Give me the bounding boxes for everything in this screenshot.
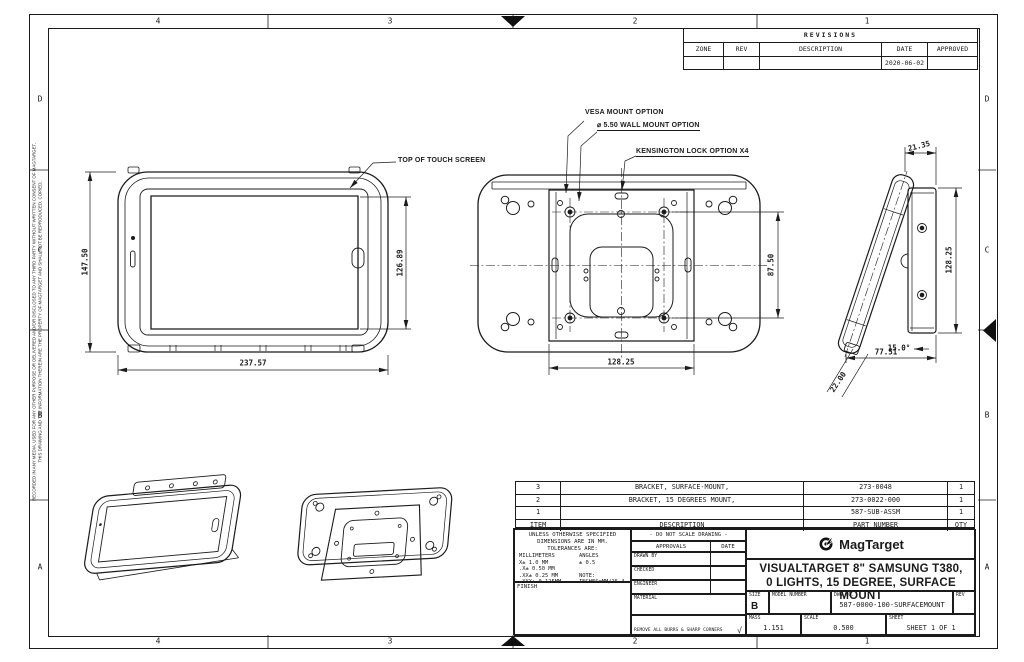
tol-angles: ANGLES [579, 553, 598, 560]
back-view [470, 168, 768, 358]
approvals-header-box: APPROVALS DATE [631, 541, 746, 552]
scale-value: 0.500 [802, 624, 885, 632]
title-block: UNLESS OTHERWISE SPECIFIED DIMENSIONS AR… [513, 528, 975, 635]
material-box: MATERIAL [631, 594, 746, 615]
iso-view-front [82, 472, 253, 581]
dim-screen-height: 126.89 [396, 249, 405, 276]
drawn-by-label: DRAWN BY [634, 554, 657, 559]
rev-entry-date: 2020-06-02 [882, 57, 928, 70]
drawing-title-box: VISUALTARGET 8" SAMSUNG T380, 0 LIGHTS, … [746, 559, 976, 591]
revisions-table: REVISIONS ZONE REV DESCRIPTION DATE APPR… [683, 28, 978, 70]
tol-angle-val: ± 0.5 [579, 560, 595, 567]
copyright-line-1: THIS DRAWING AND THE INFORMATION THEREIN… [37, 143, 43, 501]
brand-name: MagTarget [839, 537, 904, 552]
zone-row-d-right: D [985, 95, 990, 104]
zone-col-1: 1 [865, 17, 870, 26]
revisions-title: REVISIONS [684, 29, 977, 43]
front-view-dimensions [85, 162, 411, 375]
part-qty: 1 [948, 495, 974, 507]
part-number: 587-SUB-ASSM [804, 507, 948, 519]
zone-col-3: 3 [388, 17, 393, 26]
zone-col-3b: 3 [388, 637, 393, 646]
do-not-scale-label: - DO NOT SCALE DRAWING - [632, 530, 745, 541]
part-item: 2 [516, 495, 561, 507]
scale-box: SCALE 0.500 [801, 614, 886, 636]
tolerance-heading-3: TOLERANCES ARE: [515, 546, 630, 553]
tol-xx: .X± 0.50 MM [519, 566, 579, 573]
dwg-no-value: 587-0000-100-SURFACEMOUNT [832, 601, 952, 609]
size-box: SIZE B [746, 591, 769, 614]
material-label: MATERIAL [634, 596, 657, 601]
rev-entry-approved [928, 57, 977, 70]
finish-label: FINISH [517, 584, 537, 590]
callout-vesa-mount: VESA MOUNT OPTION [585, 109, 664, 116]
checked-divider [710, 567, 711, 579]
mass-box: MASS 1.151 [746, 614, 801, 636]
rev-label: REV [956, 593, 965, 598]
tol-note: NOTE: [579, 573, 595, 580]
do-not-scale-box: - DO NOT SCALE DRAWING - [631, 529, 746, 541]
part-description [561, 507, 804, 519]
engineer-box: ENGINEER [631, 580, 746, 594]
dwg-no-box: DWG NO. 587-0000-100-SURFACEMOUNT [831, 591, 953, 614]
drawing-sheet: 4 3 2 1 4 3 2 1 D C B A D C B A RECORDED… [0, 0, 1024, 662]
brand-box: MagTarget [746, 529, 976, 559]
dim-plate-width: 128.25 [607, 358, 634, 367]
tolerance-row: .X± 0.50 MM [515, 566, 630, 573]
mass-value: 1.151 [747, 624, 800, 632]
revisions-header-row: ZONE REV DESCRIPTION DATE APPROVED [684, 43, 977, 57]
finish-box: FINISH [514, 582, 631, 636]
copyright-line-2: RECORDED IN ANY MEDIA, USED FOR ANY OTHE… [31, 143, 37, 501]
tol-mm: MILLIMETERS [519, 553, 579, 560]
sheet-box: SHEET SHEET 1 OF 1 [886, 614, 976, 636]
zone-row-d-left: D [38, 95, 43, 104]
rev-entry-rev [724, 57, 760, 70]
drawing-title-line-1: VISUALTARGET 8" SAMSUNG T380, [747, 563, 975, 577]
mass-label: MASS [749, 616, 761, 621]
zone-row-c-right: C [985, 246, 990, 255]
part-number: 273-0022-000 [804, 495, 948, 507]
part-item: 1 [516, 507, 561, 519]
parts-row-3: 3 BRACKET, SURFACE-MOUNT, 273-0048 1 [516, 482, 974, 495]
callout-top-of-touch-screen: TOP OF TOUCH SCREEN [398, 157, 485, 164]
tolerance-row: X± 1.0 MM± 0.5 [515, 560, 630, 567]
tolerance-box: UNLESS OTHERWISE SPECIFIED DIMENSIONS AR… [514, 529, 631, 582]
copyright-notice: RECORDED IN ANY MEDIA, USED FOR ANY OTHE… [31, 143, 42, 501]
tolerance-row: MILLIMETERSANGLES [515, 553, 630, 560]
tolerance-heading-1: UNLESS OTHERWISE SPECIFIED [515, 530, 630, 539]
rev-col-date: DATE [882, 43, 928, 56]
rev-col-description: DESCRIPTION [760, 43, 882, 56]
brand-row: MagTarget [747, 530, 975, 558]
tolerance-row: .XX± 0.25 MMNOTE: [515, 573, 630, 580]
approvals-date-label: DATE [711, 542, 745, 551]
callout-kensington-lock: KENSINGTON LOCK OPTION X4 [636, 148, 749, 157]
side-view [834, 168, 936, 361]
approvals-label: APPROVALS [632, 542, 711, 551]
scale-label: SCALE [804, 616, 818, 621]
magtarget-logo-icon [818, 536, 834, 552]
part-qty: 1 [948, 507, 974, 519]
zone-row-b-right: B [985, 411, 990, 420]
callout-wall-mount: ⌀ 5.50 WALL MOUNT OPTION [597, 121, 700, 131]
rev-entry-zone [684, 57, 724, 70]
zone-col-2b: 2 [633, 637, 638, 646]
zone-row-a-left: A [38, 563, 43, 572]
rev-entry-description [760, 57, 882, 70]
parts-row-2: 2 BRACKET, 15 DEGREES MOUNT, 273-0022-00… [516, 495, 974, 508]
burrs-label: REMOVE ALL BURRS & SHARP CORNERS [634, 628, 723, 633]
part-qty: 1 [948, 482, 974, 494]
size-label: SIZE [749, 593, 761, 598]
zone-col-2: 2 [633, 17, 638, 26]
iso-view-rear [295, 487, 452, 581]
rev-box: REV [953, 591, 976, 614]
part-number: 273-0048 [804, 482, 948, 494]
dim-hole-spacing: 87.50 [767, 254, 776, 277]
part-description: BRACKET, SURFACE-MOUNT, [561, 482, 804, 494]
zone-row-a-right: A [985, 563, 990, 572]
dim-base-depth: 77.51 [875, 348, 898, 357]
sheet-label: SHEET [889, 616, 903, 621]
dwg-no-label: DWG NO. [834, 593, 854, 598]
tol-x: X± 1.0 MM [519, 560, 579, 567]
zone-col-1b: 1 [865, 637, 870, 646]
rev-col-rev: REV [724, 43, 760, 56]
dim-front-height: 147.50 [81, 248, 90, 275]
dim-front-width: 237.57 [239, 359, 266, 368]
model-number-box: MODEL NUMBER [769, 591, 831, 614]
finish-symbol-icon: √ [737, 626, 742, 635]
engineer-divider [710, 581, 711, 593]
dim-plate-height: 128.25 [945, 246, 954, 273]
parts-row-1: 1 587-SUB-ASSM 1 [516, 507, 974, 520]
engineer-label: ENGINEER [634, 582, 657, 587]
back-view-dimensions [549, 121, 784, 375]
burrs-box: REMOVE ALL BURRS & SHARP CORNERS √ [631, 615, 746, 636]
rev-col-zone: ZONE [684, 43, 724, 56]
drawn-by-divider [710, 553, 711, 565]
part-description: BRACKET, 15 DEGREES MOUNT, [561, 495, 804, 507]
front-view [118, 167, 388, 352]
size-value: B [751, 601, 758, 612]
drawn-by-box: DRAWN BY [631, 552, 746, 566]
part-item: 3 [516, 482, 561, 494]
model-number-label: MODEL NUMBER [772, 593, 807, 598]
parts-table: 3 BRACKET, SURFACE-MOUNT, 273-0048 1 2 B… [515, 481, 975, 528]
zone-col-4: 4 [156, 17, 161, 26]
revisions-entry-row: 2020-06-02 [684, 57, 977, 70]
checked-box: CHECKED [631, 566, 746, 580]
rev-col-approved: APPROVED [928, 43, 977, 56]
checked-label: CHECKED [634, 568, 654, 573]
tol-xxx: .XX± 0.25 MM [519, 573, 579, 580]
sheet-value: SHEET 1 OF 1 [887, 624, 975, 632]
tolerance-heading-2: DIMENSIONS ARE IN MM. [515, 539, 630, 546]
zone-col-4b: 4 [156, 637, 161, 646]
